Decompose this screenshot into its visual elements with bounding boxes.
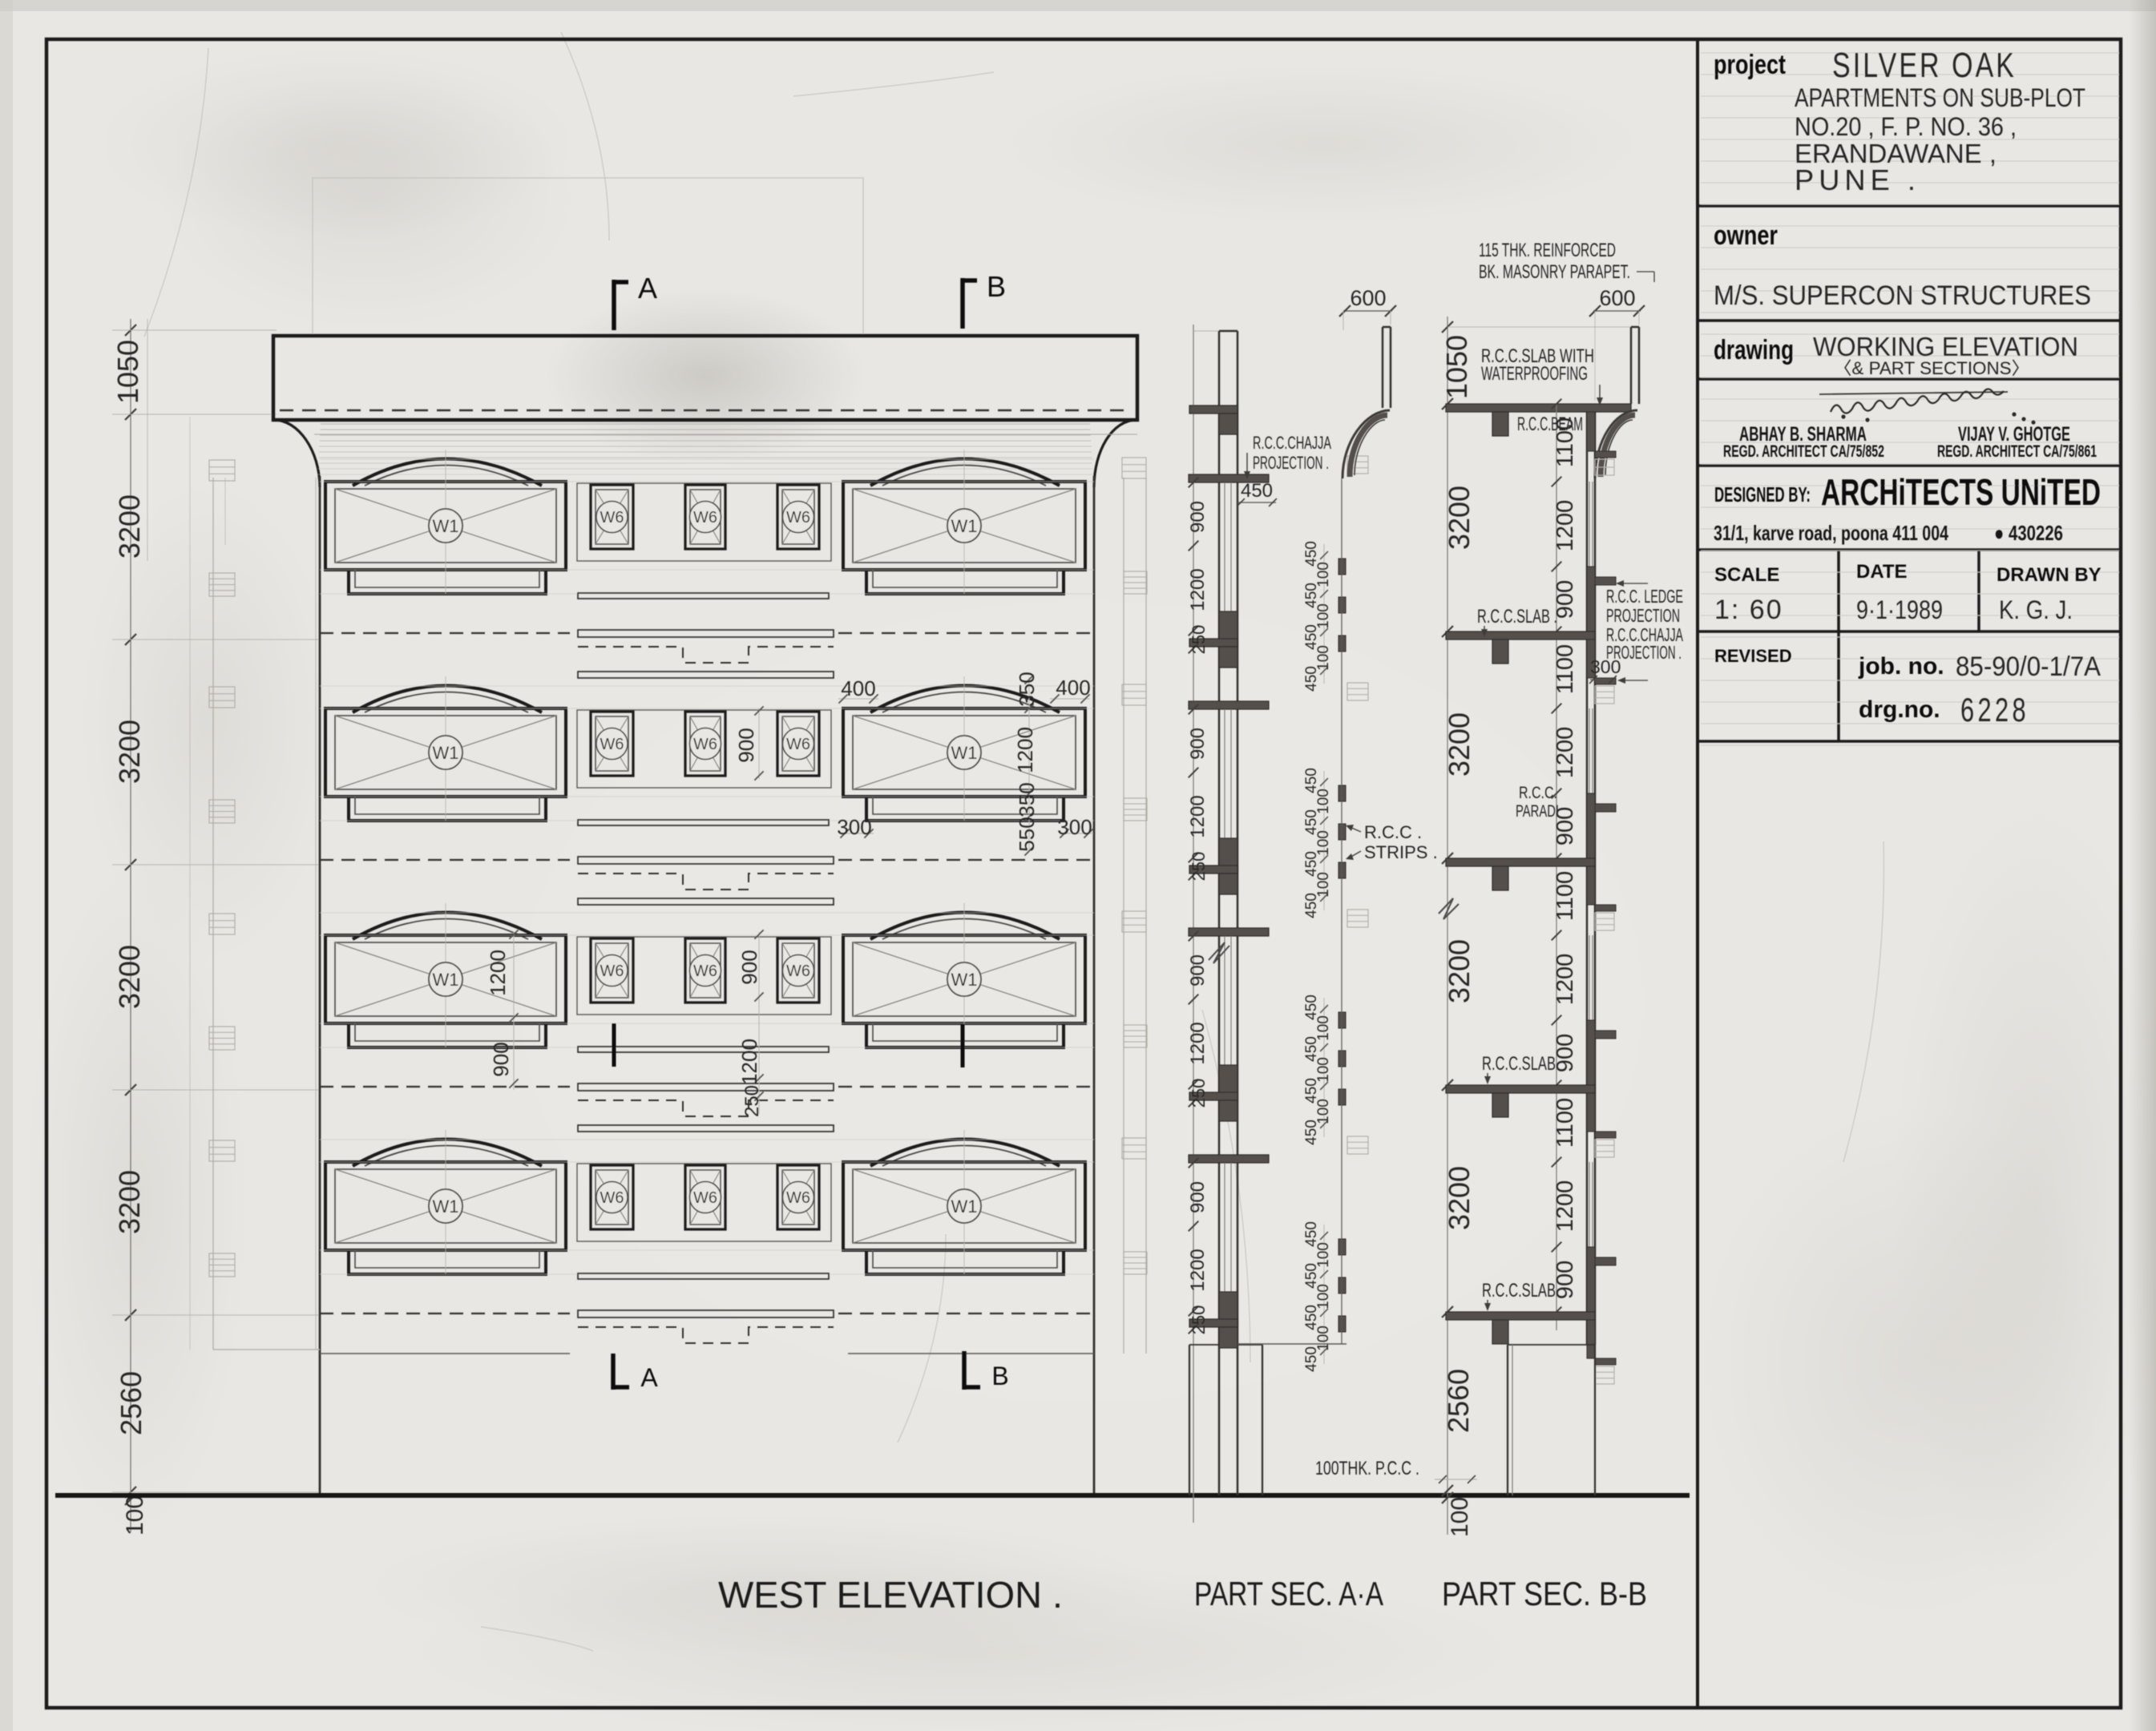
svg-text:R.C.C.SLAB: R.C.C.SLAB [1482, 1053, 1556, 1075]
svg-text:550: 550 [1015, 817, 1039, 851]
svg-text:R.C.C .: R.C.C . [1364, 822, 1422, 842]
svg-text:PARADI: PARADI [1516, 802, 1559, 821]
svg-text:W6: W6 [693, 509, 717, 527]
svg-text:W6: W6 [600, 1189, 624, 1207]
svg-text:B: B [991, 1362, 1008, 1390]
svg-text:1100: 1100 [1552, 871, 1578, 921]
svg-text:PART SEC. A·A: PART SEC. A·A [1194, 1575, 1383, 1612]
svg-text:W6: W6 [693, 1189, 717, 1207]
svg-text:100THK. P.C.C .: 100THK. P.C.C . [1315, 1458, 1419, 1479]
svg-text:PART SEC. B-B: PART SEC. B-B [1442, 1575, 1647, 1612]
svg-text:1: 60: 1: 60 [1714, 595, 1783, 625]
svg-text:W6: W6 [786, 1189, 810, 1207]
svg-text:W1: W1 [951, 743, 978, 763]
svg-text:SILVER OAK: SILVER OAK [1832, 46, 2017, 85]
svg-text:450: 450 [1303, 1120, 1320, 1145]
svg-text:1200: 1200 [1187, 1022, 1209, 1064]
svg-text:115 THK. REINFORCED: 115 THK. REINFORCED [1479, 240, 1616, 261]
svg-text:600: 600 [1599, 286, 1635, 310]
svg-text:450: 450 [1303, 666, 1320, 692]
svg-text:W6: W6 [786, 962, 810, 980]
svg-text:W6: W6 [600, 962, 624, 980]
svg-text:1200: 1200 [1187, 795, 1209, 837]
svg-text:R.C.C. LEDGE: R.C.C. LEDGE [1606, 586, 1683, 607]
svg-text:STRIPS .: STRIPS . [1364, 842, 1438, 862]
svg-text:WEST ELEVATION .: WEST ELEVATION . [718, 1574, 1063, 1616]
svg-text:900: 900 [1187, 728, 1209, 760]
svg-text:1050: 1050 [111, 340, 144, 404]
svg-text:W6: W6 [693, 962, 717, 980]
svg-text:W1: W1 [951, 1196, 978, 1217]
svg-text:W6: W6 [786, 736, 810, 753]
svg-text:3200: 3200 [113, 1170, 146, 1234]
svg-text:900: 900 [1187, 501, 1209, 533]
svg-text:NO.20 , F. P. NO. 36 ,: NO.20 , F. P. NO. 36 , [1795, 112, 2017, 141]
svg-text:6228: 6228 [1960, 691, 2029, 728]
svg-text:● 430226: ● 430226 [1994, 521, 2063, 545]
svg-text:400: 400 [1056, 676, 1090, 700]
svg-text:A: A [640, 1363, 658, 1392]
svg-text:W6: W6 [786, 509, 810, 527]
svg-text:DRAWN BY: DRAWN BY [1997, 564, 2101, 586]
svg-text:300: 300 [1057, 815, 1092, 839]
svg-text:drg.no.: drg.no. [1859, 696, 1940, 723]
svg-text:job. no.: job. no. [1858, 653, 1944, 680]
svg-text:BK. MASONRY PARAPET.: BK. MASONRY PARAPET. [1479, 261, 1630, 283]
svg-text:900: 900 [489, 1042, 513, 1076]
svg-text:M/S. SUPERCON STRUCTURES: M/S. SUPERCON STRUCTURES [1714, 280, 2091, 311]
svg-text:DATE: DATE [1856, 561, 1908, 583]
svg-text:R.C.C.SLAB .: R.C.C.SLAB . [1477, 606, 1557, 627]
svg-text:350: 350 [1015, 672, 1039, 706]
svg-text:W1: W1 [433, 970, 459, 990]
svg-text:1200: 1200 [1552, 727, 1578, 779]
svg-text:900: 900 [1552, 1261, 1578, 1299]
svg-text:WATERPROOFING: WATERPROOFING [1481, 363, 1588, 385]
svg-text:W6: W6 [600, 509, 624, 527]
svg-text:W1: W1 [951, 970, 978, 990]
svg-text:project: project [1714, 50, 1786, 80]
svg-text:WORKING ELEVATION: WORKING ELEVATION [1813, 332, 2078, 361]
svg-text:3200: 3200 [1443, 1166, 1476, 1230]
svg-text:REGD. ARCHITECT CA/75/861: REGD. ARCHITECT CA/75/861 [1937, 442, 2097, 461]
svg-text:W1: W1 [433, 743, 459, 763]
svg-text:〈& PART SECTIONS〉: 〈& PART SECTIONS〉 [1834, 358, 2029, 378]
svg-text:250: 250 [1189, 1079, 1209, 1108]
svg-text:1100: 1100 [1552, 1098, 1578, 1148]
svg-text:PUNE .: PUNE . [1795, 163, 1920, 196]
svg-text:100: 100 [122, 1495, 148, 1535]
svg-text:K. G. J.: K. G. J. [1999, 595, 2073, 624]
svg-text:W6: W6 [693, 736, 717, 753]
svg-text:W1: W1 [433, 516, 459, 536]
svg-text:REVISED: REVISED [1714, 646, 1792, 666]
svg-text:400: 400 [841, 676, 875, 700]
svg-text:900: 900 [737, 950, 761, 984]
svg-text:A: A [638, 272, 657, 305]
svg-text:250: 250 [741, 1085, 763, 1117]
svg-text:1200: 1200 [1013, 727, 1037, 773]
svg-text:ARCHiTECTS UNiTED: ARCHiTECTS UNiTED [1821, 471, 2101, 513]
svg-text:1200: 1200 [1187, 1249, 1209, 1291]
svg-text:1200: 1200 [1552, 500, 1578, 552]
svg-text:2560: 2560 [115, 1371, 147, 1435]
svg-text:R.C.C.BEAM: R.C.C.BEAM [1517, 414, 1583, 435]
svg-text:3200: 3200 [1443, 712, 1476, 777]
svg-text:900: 900 [734, 728, 758, 762]
svg-text:450: 450 [1303, 893, 1320, 918]
svg-text:250: 250 [1189, 852, 1209, 882]
svg-text:300: 300 [1590, 656, 1621, 677]
svg-text:PROJECTION .: PROJECTION . [1253, 453, 1329, 473]
svg-text:31/1, karve road, poona 411 00: 31/1, karve road, poona 411 004 [1714, 521, 1948, 545]
svg-text:R.C.C.: R.C.C. [1519, 784, 1557, 802]
svg-text:REGD. ARCHITECT CA/75/852: REGD. ARCHITECT CA/75/852 [1723, 442, 1884, 461]
svg-text:900: 900 [1187, 954, 1209, 987]
svg-text:450: 450 [1303, 1346, 1320, 1372]
svg-text:R.C.C.CHAJJA: R.C.C.CHAJJA [1253, 433, 1331, 453]
svg-text:1200: 1200 [486, 950, 510, 996]
svg-text:3200: 3200 [1443, 486, 1476, 550]
svg-text:9·1·1989: 9·1·1989 [1856, 595, 1943, 624]
svg-text:APARTMENTS ON SUB-PLOT: APARTMENTS ON SUB-PLOT [1795, 83, 2085, 112]
svg-text:350: 350 [1015, 782, 1039, 817]
svg-text:SCALE: SCALE [1714, 564, 1779, 586]
svg-text:3200: 3200 [1443, 939, 1476, 1003]
svg-text:owner: owner [1714, 220, 1778, 251]
svg-text:2560: 2560 [1442, 1369, 1475, 1433]
svg-text:900: 900 [1187, 1181, 1209, 1213]
svg-text:drawing: drawing [1714, 335, 1794, 365]
svg-text:250: 250 [1189, 1305, 1209, 1335]
svg-text:B: B [987, 270, 1006, 303]
svg-text:PROJECTION: PROJECTION [1606, 605, 1680, 626]
svg-text:R.C.C.SLAB: R.C.C.SLAB [1482, 1280, 1556, 1301]
svg-text:1200: 1200 [1552, 954, 1578, 1006]
svg-text:1100: 1100 [1552, 644, 1578, 694]
svg-text:3200: 3200 [113, 494, 146, 559]
svg-text:W6: W6 [600, 736, 624, 753]
svg-text:1200: 1200 [1187, 568, 1209, 611]
svg-text:250: 250 [1189, 625, 1209, 655]
svg-text:1050: 1050 [1440, 335, 1473, 399]
svg-text:1200: 1200 [1552, 1180, 1578, 1233]
svg-text:1200: 1200 [737, 1039, 761, 1085]
svg-text:100: 100 [1447, 1497, 1473, 1537]
svg-text:3200: 3200 [113, 720, 146, 784]
svg-text:W1: W1 [951, 516, 978, 536]
svg-text:450: 450 [1241, 480, 1273, 502]
svg-text:DESIGNED BY:: DESIGNED BY: [1714, 482, 1811, 506]
svg-text:85-90/0-1/7A: 85-90/0-1/7A [1956, 652, 2101, 682]
svg-text:3200: 3200 [113, 945, 146, 1009]
svg-text:300: 300 [837, 815, 871, 839]
svg-text:900: 900 [1552, 1034, 1578, 1072]
svg-text:600: 600 [1350, 286, 1386, 310]
svg-text:W1: W1 [433, 1196, 459, 1217]
